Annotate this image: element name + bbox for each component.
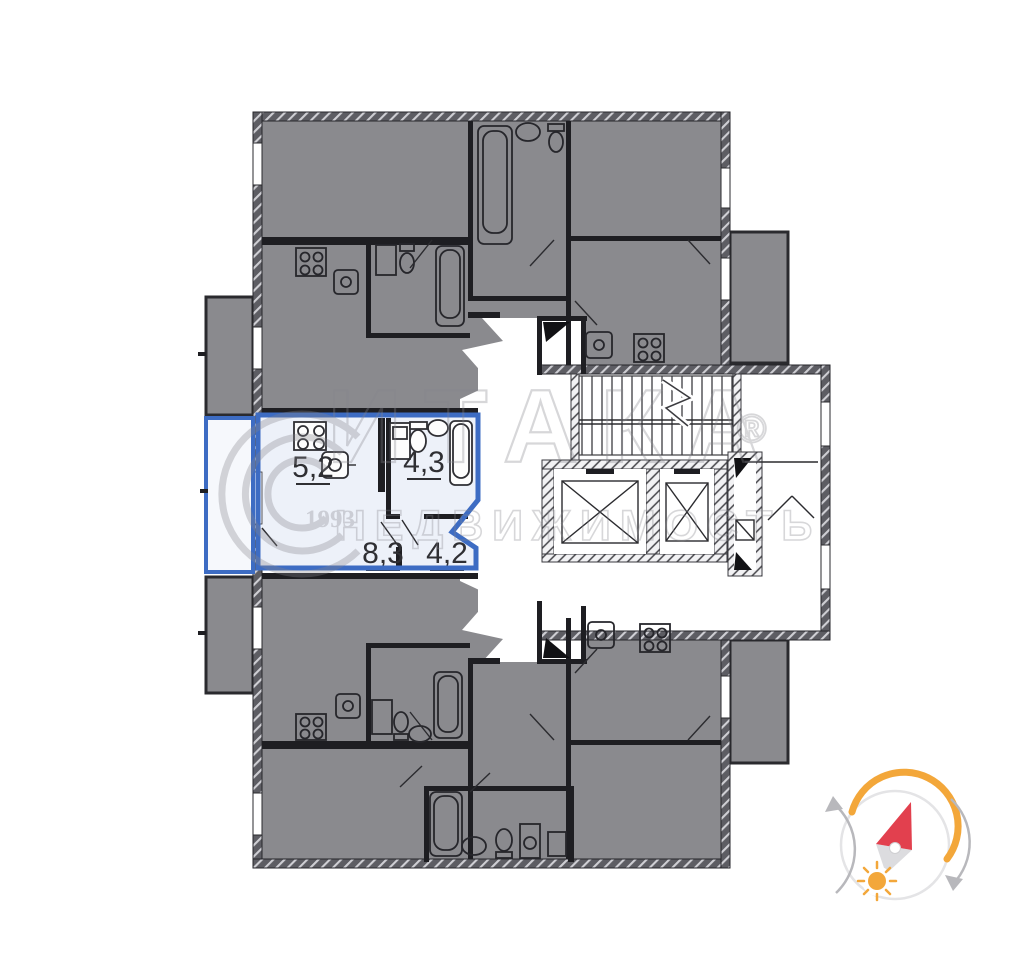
sun-icon xyxy=(858,862,896,900)
compass-rotation-control[interactable] xyxy=(825,772,970,900)
balcony-left-top xyxy=(206,297,253,415)
balcony-right-bottom xyxy=(730,640,788,763)
watermark-subtitle: НЕДВИЖИМОСТЬ xyxy=(335,502,822,550)
balcony-right-top xyxy=(730,232,788,363)
floorplan-drawing: 5,2 4,3 8,3 4,2 ИТАКА ® 1993 НЕДВИЖИМОСТ… xyxy=(0,0,1024,974)
balcony-left-bottom xyxy=(206,577,253,693)
watermark-brand: ИТАКА xyxy=(327,369,782,485)
rotate-arrow-right-head xyxy=(945,875,963,891)
watermark-registered-icon: ® xyxy=(737,407,766,451)
floorplan-page: 5,2 4,3 8,3 4,2 ИТАКА ® 1993 НЕДВИЖИМОСТ… xyxy=(0,0,1024,974)
